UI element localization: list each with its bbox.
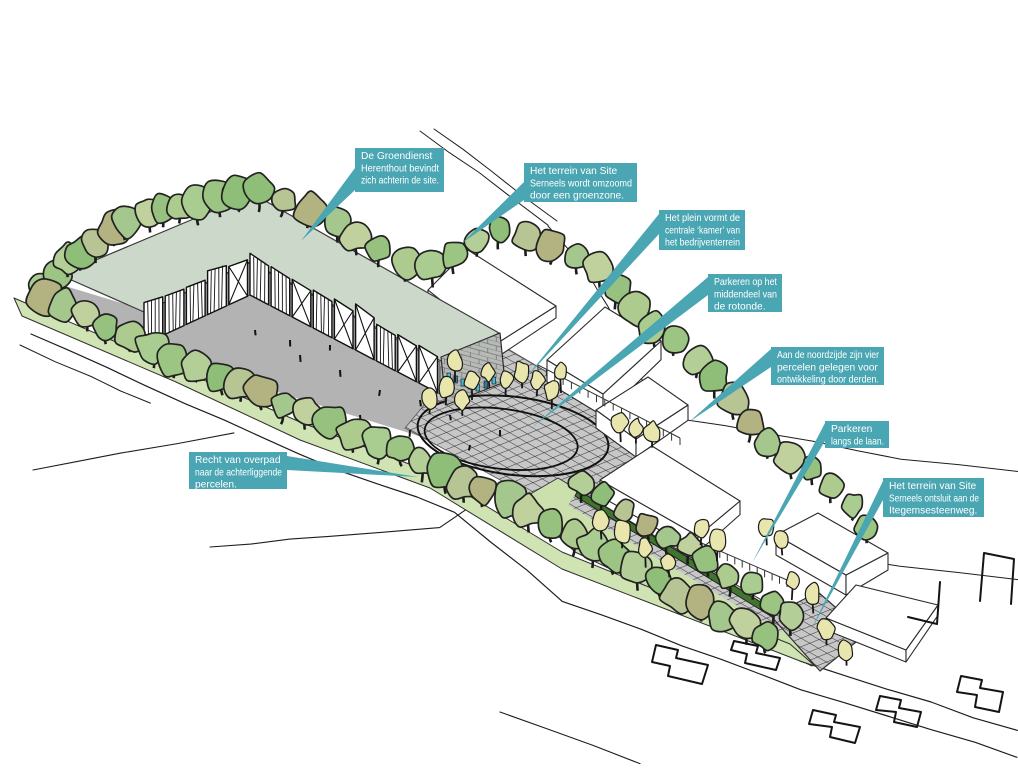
svg-text:Het plein vormt de: Het plein vormt de <box>665 213 740 224</box>
svg-text:het bedrijventerrein: het bedrijventerrein <box>665 238 740 249</box>
svg-text:percelen.: percelen. <box>195 480 237 491</box>
svg-text:zich achterin de site.: zich achterin de site. <box>361 176 439 187</box>
svg-text:Het terrein van Site: Het terrein van Site <box>530 166 618 177</box>
svg-text:middendeel van: middendeel van <box>714 289 777 300</box>
svg-text:langs de laan.: langs de laan. <box>831 436 884 447</box>
svg-text:Parkeren op het: Parkeren op het <box>714 277 777 288</box>
svg-text:Herenthout bevindt: Herenthout bevindt <box>361 163 439 174</box>
svg-text:door een groenzone.: door een groenzone. <box>530 191 624 202</box>
svg-text:Itegemsesteenweg.: Itegemsesteenweg. <box>889 506 977 517</box>
svg-text:Serneels ontsluit aan de: Serneels ontsluit aan de <box>889 493 979 504</box>
svg-text:ontwikkeling door derden.: ontwikkeling door derden. <box>777 375 879 386</box>
svg-text:Parkeren: Parkeren <box>831 424 872 435</box>
svg-text:De Groendienst: De Groendienst <box>361 151 433 162</box>
svg-text:Recht van overpad: Recht van overpad <box>195 455 281 466</box>
svg-text:percelen gelegen voor: percelen gelegen voor <box>777 362 878 373</box>
svg-text:Serneels wordt omzoomd: Serneels wordt omzoomd <box>530 178 632 189</box>
svg-text:Aan de noordzijde zijn vier: Aan de noordzijde zijn vier <box>777 350 880 361</box>
svg-text:naar de achterliggende: naar de achterliggende <box>195 467 282 478</box>
svg-text:centrale ‘kamer’ van: centrale ‘kamer’ van <box>665 225 740 236</box>
svg-text:de rotonde.: de rotonde. <box>714 302 766 313</box>
svg-text:Het terrein van Site: Het terrein van Site <box>889 481 977 492</box>
